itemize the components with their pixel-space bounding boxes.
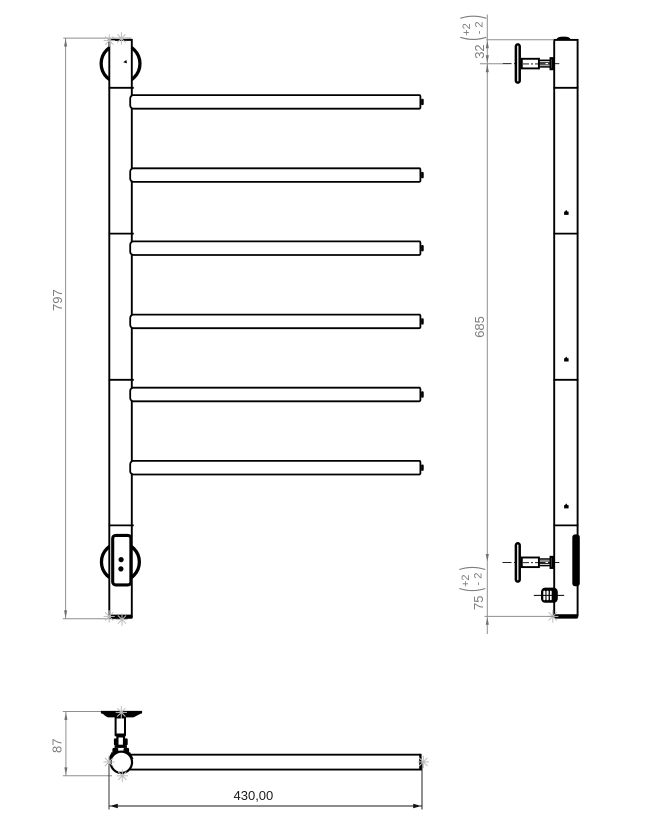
svg-text:+2: +2	[461, 23, 473, 36]
svg-text:- 2: - 2	[474, 21, 486, 34]
svg-text:+2: +2	[460, 574, 472, 587]
svg-text:75: 75	[471, 596, 486, 610]
svg-text:87: 87	[49, 739, 64, 753]
svg-text:- 2: - 2	[473, 573, 485, 586]
svg-text:685: 685	[472, 316, 487, 338]
svg-text:32: 32	[472, 44, 487, 58]
svg-text:430,00: 430,00	[234, 788, 274, 803]
svg-text:797: 797	[50, 289, 65, 311]
